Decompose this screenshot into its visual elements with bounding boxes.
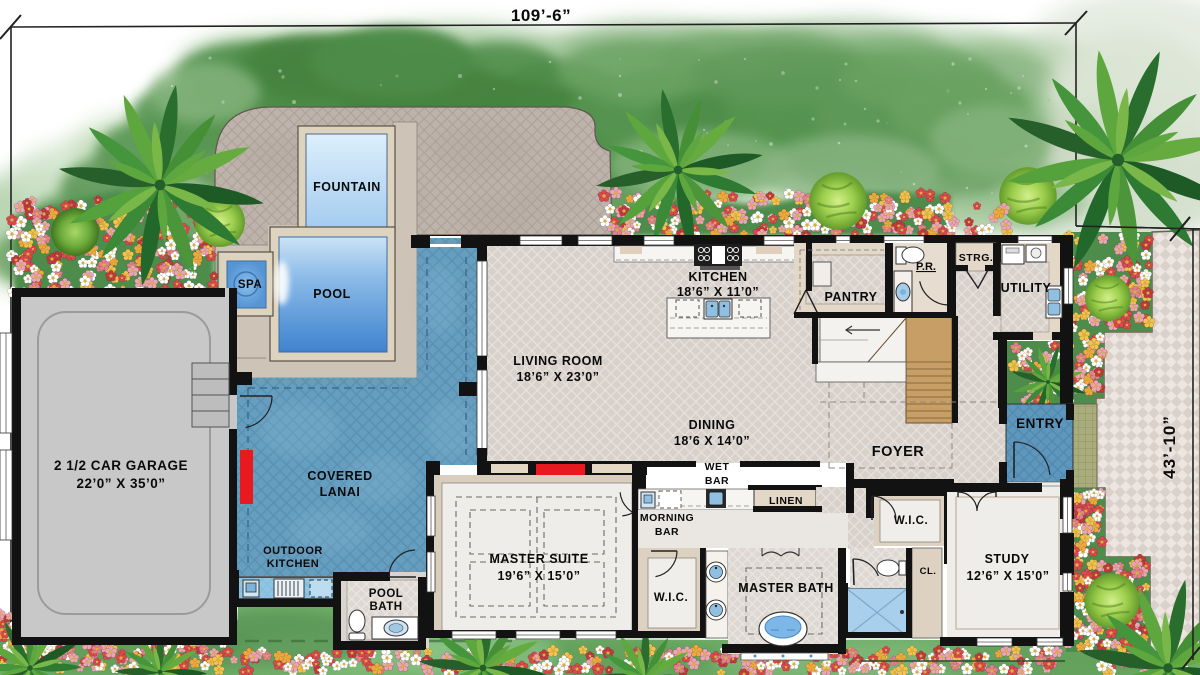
svg-text:POOL: POOL [369,588,404,600]
svg-text:43’-10”: 43’-10” [1160,415,1179,479]
svg-text:MASTER SUITE: MASTER SUITE [489,552,588,566]
svg-text:FOYER: FOYER [872,444,924,460]
svg-text:MORNING: MORNING [640,512,694,524]
svg-text:18’6” X 11’0”: 18’6” X 11’0” [677,285,759,299]
svg-text:ENTRY: ENTRY [1016,416,1064,431]
svg-text:CL.: CL. [920,566,937,577]
svg-text:MASTER BATH: MASTER BATH [738,581,834,595]
svg-text:STRG.: STRG. [959,252,994,264]
svg-text:KITCHEN: KITCHEN [267,558,319,570]
svg-text:18’6 X 14’0”: 18’6 X 14’0” [674,434,750,448]
svg-text:LIVING ROOM: LIVING ROOM [513,354,603,368]
svg-text:COVERED: COVERED [307,469,372,483]
svg-text:18’6” X 23’0”: 18’6” X 23’0” [517,370,600,384]
svg-text:UTILITY: UTILITY [1001,281,1052,295]
svg-text:BAR: BAR [655,526,679,538]
svg-text:W.I.C.: W.I.C. [654,592,688,604]
svg-text:LINEN: LINEN [769,495,803,507]
svg-text:STUDY: STUDY [985,552,1030,566]
svg-text:12’6” X 15’0”: 12’6” X 15’0” [967,569,1050,583]
svg-text:KITCHEN: KITCHEN [688,270,747,284]
svg-text:LANAI: LANAI [320,485,361,499]
svg-text:OUTDOOR: OUTDOOR [263,545,323,557]
svg-text:SPA: SPA [238,279,262,291]
svg-text:22’0” X 35’0”: 22’0” X 35’0” [76,476,165,491]
svg-text:W.I.C.: W.I.C. [894,515,928,527]
svg-text:109’-6”: 109’-6” [511,6,571,25]
svg-text:2 1/2 CAR GARAGE: 2 1/2 CAR GARAGE [54,458,188,473]
svg-text:BATH: BATH [369,601,402,613]
svg-text:POOL: POOL [313,287,350,301]
svg-text:19’6” X 15’0”: 19’6” X 15’0” [498,569,581,583]
svg-text:DINING: DINING [689,418,736,432]
svg-text:BAR: BAR [705,475,729,487]
svg-text:WET: WET [705,461,730,473]
svg-text:PANTRY: PANTRY [825,290,878,304]
svg-text:P.R.: P.R. [916,261,936,273]
svg-text:FOUNTAIN: FOUNTAIN [313,180,381,194]
